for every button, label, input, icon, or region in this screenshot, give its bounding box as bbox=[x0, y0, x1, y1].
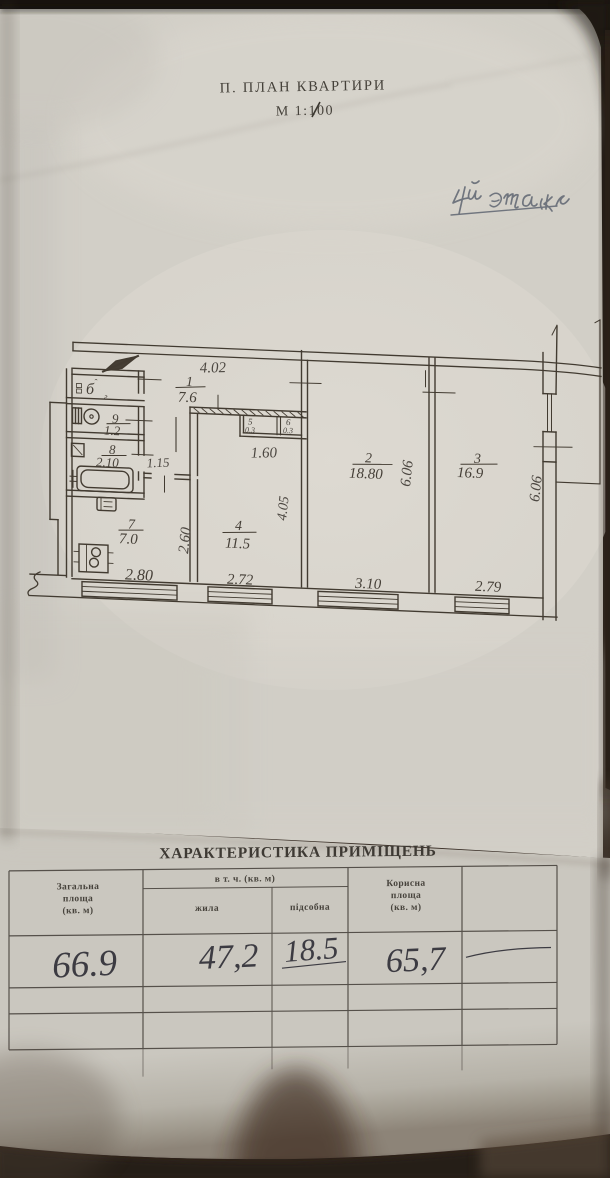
svg-text:18.80: 18.80 bbox=[349, 466, 383, 483]
svg-text:11.5: 11.5 bbox=[225, 536, 251, 553]
svg-text:66.9: 66.9 bbox=[52, 943, 118, 987]
svg-text:7.0: 7.0 bbox=[119, 531, 138, 548]
svg-text:ХАРАКТЕРИСТИКА ПРИМІЩЕНЬ: ХАРАКТЕРИСТИКА ПРИМІЩЕНЬ bbox=[159, 843, 437, 863]
svg-text:4.05: 4.05 bbox=[275, 495, 292, 521]
svg-text:65,7: 65,7 bbox=[385, 940, 448, 980]
svg-text:3.10: 3.10 bbox=[354, 576, 382, 593]
svg-text:7.6: 7.6 bbox=[178, 390, 197, 407]
svg-text:16.9: 16.9 bbox=[457, 465, 484, 482]
svg-text:0.3: 0.3 bbox=[283, 426, 293, 435]
svg-text:(кв. м): (кв. м) bbox=[63, 905, 94, 916]
svg-text:2.72: 2.72 bbox=[227, 572, 254, 589]
svg-text:4.02: 4.02 bbox=[199, 360, 227, 376]
svg-text:2.60: 2.60 bbox=[176, 526, 195, 555]
svg-text:1.15: 1.15 bbox=[146, 455, 170, 471]
svg-text:Корисна: Корисна bbox=[386, 879, 425, 889]
svg-text:1.2: 1.2 bbox=[104, 423, 121, 439]
svg-text:2.10: 2.10 bbox=[96, 454, 119, 470]
svg-text:(кв. м): (кв. м) bbox=[391, 902, 422, 913]
svg-text:1: 1 bbox=[186, 375, 193, 390]
svg-text:47,2: 47,2 bbox=[198, 937, 259, 977]
svg-text:жила: жила bbox=[195, 904, 219, 914]
svg-text:в т. ч. (кв. м): в т. ч. (кв. м) bbox=[215, 873, 275, 885]
svg-text:М 1:100: М 1:100 bbox=[276, 103, 335, 119]
svg-text:площа: площа bbox=[391, 891, 421, 901]
svg-text:0.3: 0.3 bbox=[245, 425, 255, 434]
svg-text:г: г bbox=[104, 392, 108, 402]
svg-text:2.79: 2.79 bbox=[475, 579, 502, 596]
svg-text:1.60: 1.60 bbox=[250, 445, 278, 461]
svg-text:2.80: 2.80 bbox=[125, 566, 153, 584]
svg-text:3: 3 bbox=[473, 452, 481, 467]
svg-text:б: б bbox=[86, 381, 95, 398]
svg-text:підсобна: підсобна bbox=[290, 902, 330, 913]
svg-text:П. ПЛАН КВАРТИРИ: П. ПЛАН КВАРТИРИ bbox=[220, 78, 387, 97]
svg-text:Загальна: Загальна bbox=[57, 882, 100, 892]
svg-text:площа: площа bbox=[63, 894, 93, 904]
svg-text:6.06: 6.06 bbox=[398, 459, 417, 488]
